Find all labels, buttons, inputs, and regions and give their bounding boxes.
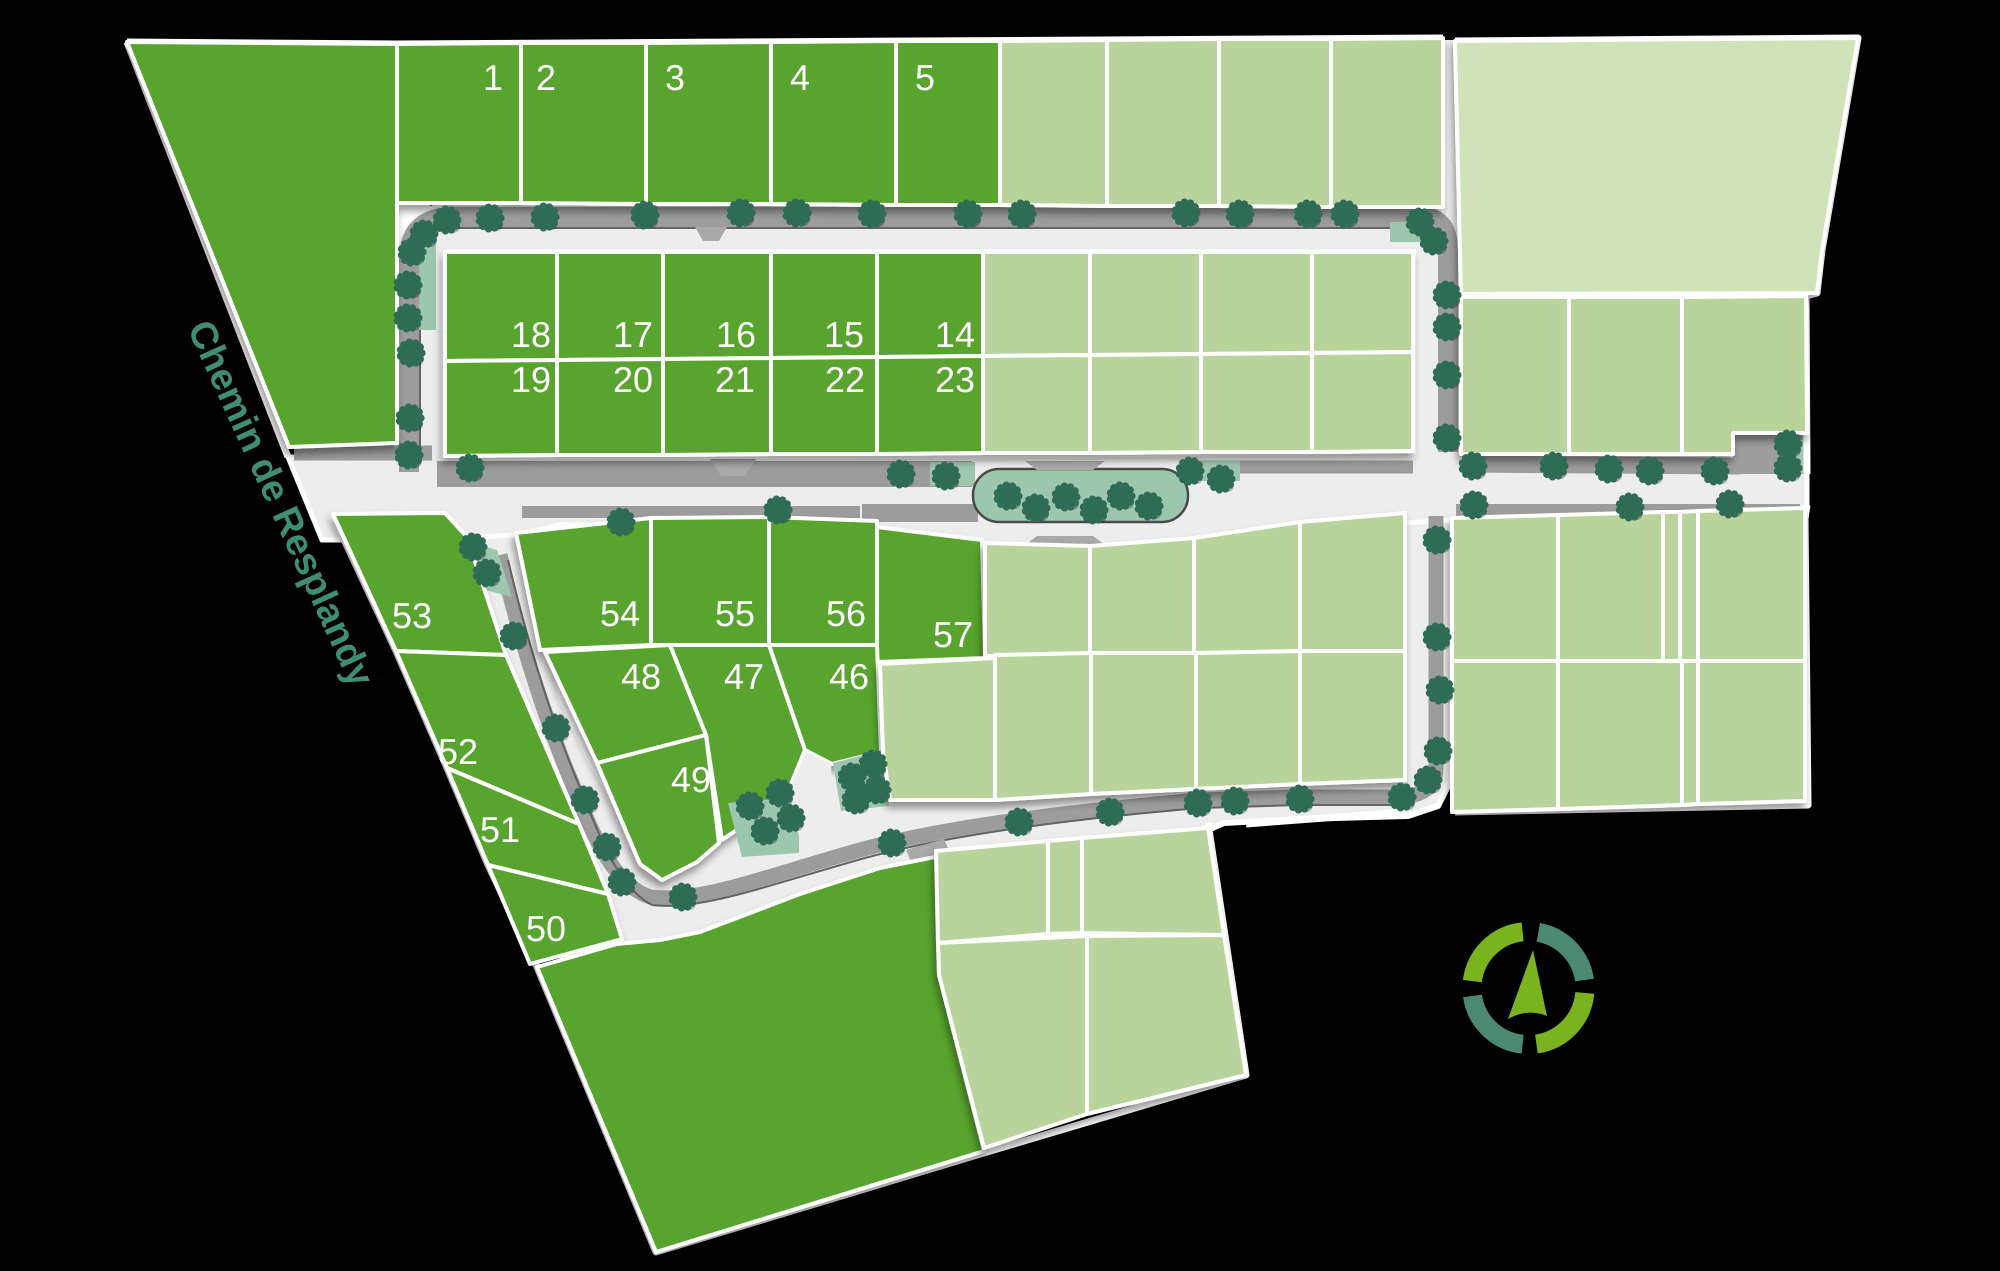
svg-text:1: 1	[483, 57, 503, 98]
svg-text:14: 14	[935, 314, 975, 355]
svg-text:54: 54	[600, 593, 640, 634]
svg-text:16: 16	[716, 314, 756, 355]
svg-text:5: 5	[915, 57, 935, 98]
svg-text:49: 49	[671, 759, 711, 800]
svg-text:47: 47	[724, 656, 764, 697]
svg-text:2: 2	[536, 57, 556, 98]
svg-text:15: 15	[824, 314, 864, 355]
svg-text:20: 20	[613, 359, 653, 400]
svg-text:55: 55	[715, 593, 755, 634]
svg-text:50: 50	[526, 908, 566, 949]
svg-text:18: 18	[511, 314, 551, 355]
svg-text:46: 46	[829, 656, 869, 697]
svg-text:52: 52	[438, 731, 478, 772]
svg-text:56: 56	[826, 593, 866, 634]
svg-text:51: 51	[480, 809, 520, 850]
svg-text:22: 22	[825, 359, 865, 400]
svg-text:23: 23	[935, 359, 975, 400]
svg-text:17: 17	[613, 314, 653, 355]
svg-text:4: 4	[790, 57, 810, 98]
svg-text:21: 21	[715, 359, 755, 400]
svg-text:48: 48	[621, 656, 661, 697]
svg-text:53: 53	[392, 595, 432, 636]
svg-text:57: 57	[933, 614, 973, 655]
svg-text:3: 3	[665, 57, 685, 98]
svg-text:19: 19	[511, 359, 551, 400]
